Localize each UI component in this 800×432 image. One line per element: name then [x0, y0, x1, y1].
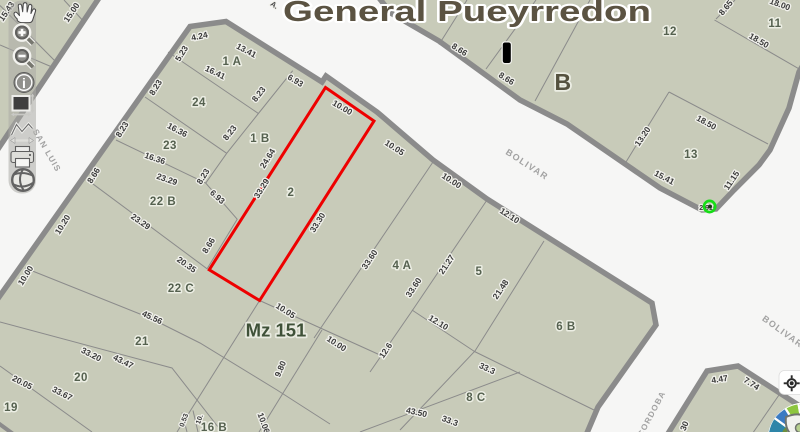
svg-text:i: i: [22, 75, 26, 91]
svg-text:19: 19: [4, 402, 18, 414]
svg-text:6 B: 6 B: [556, 321, 575, 333]
svg-text:2: 2: [288, 187, 295, 199]
svg-text:8 C: 8 C: [466, 392, 485, 404]
svg-text:1 A: 1 A: [223, 56, 242, 68]
svg-text:21: 21: [135, 336, 149, 348]
svg-text:5: 5: [476, 266, 483, 278]
svg-text:11: 11: [768, 18, 781, 30]
svg-text:22 B: 22 B: [150, 196, 176, 208]
svg-text:13: 13: [684, 149, 698, 161]
svg-text:16 B: 16 B: [201, 422, 227, 432]
svg-text:General Pueyrredon: General Pueyrredon: [283, 0, 651, 28]
svg-text:20: 20: [74, 372, 88, 384]
svg-text:1 B: 1 B: [250, 133, 269, 145]
svg-text:12: 12: [663, 26, 677, 38]
svg-text:23: 23: [163, 140, 177, 152]
svg-text:Mz 151: Mz 151: [246, 320, 307, 341]
svg-text:22 C: 22 C: [168, 283, 194, 295]
svg-text:24: 24: [192, 97, 206, 109]
svg-text:4 A: 4 A: [393, 260, 412, 272]
svg-text:B: B: [554, 69, 571, 95]
